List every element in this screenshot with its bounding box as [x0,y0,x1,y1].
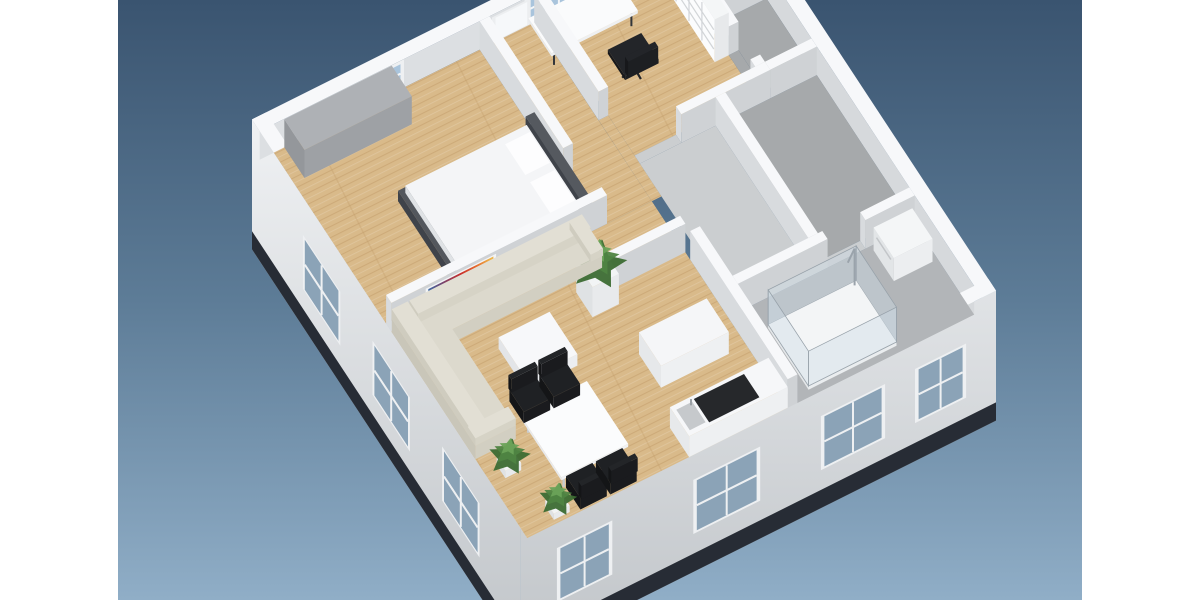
floorplan-screenshot [0,0,1200,600]
apartment-3d-model [0,0,1200,600]
